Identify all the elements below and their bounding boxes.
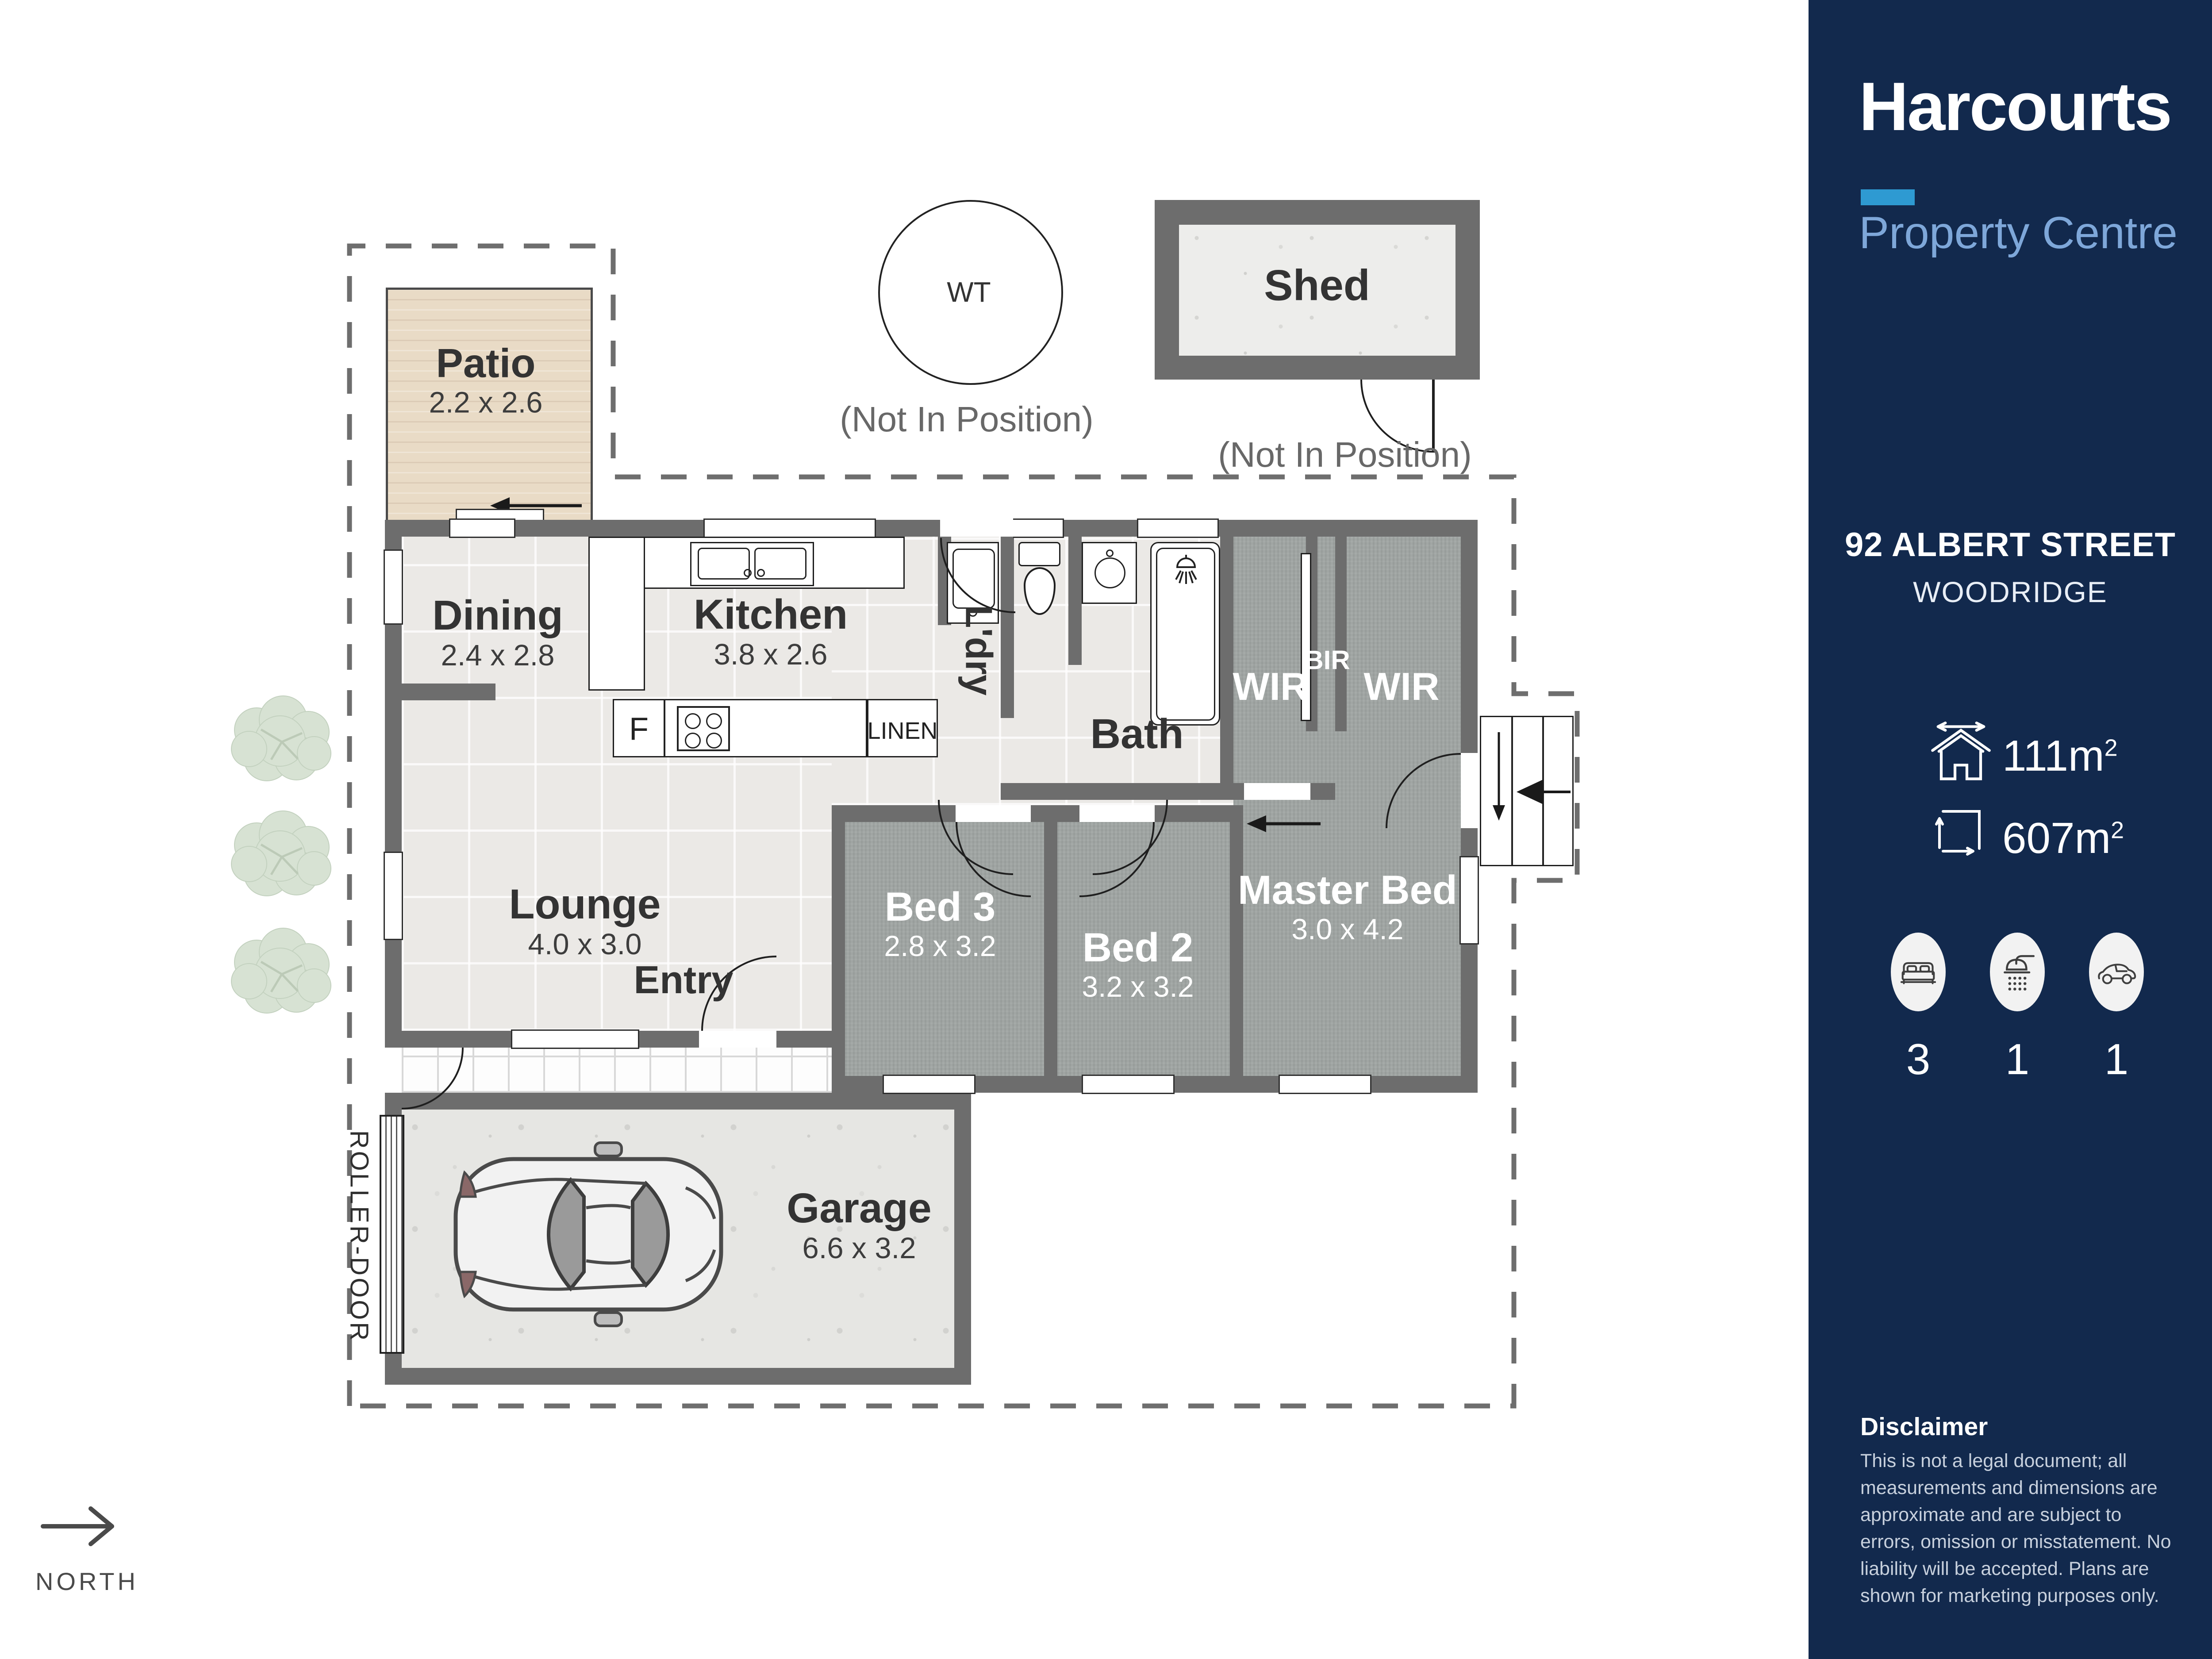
roller-door-label: ROLLER-DOOR [345, 1130, 374, 1343]
disclaimer-body: This is not a legal document; all measur… [1860, 1448, 2175, 1609]
window-dining-left [384, 549, 403, 625]
house-area-icon [1929, 721, 1993, 785]
floor-area-value: 111m2 [2002, 731, 2118, 781]
floor-entry-porch-tiles [402, 1048, 832, 1093]
shower-head-icon [1166, 552, 1206, 588]
bed-count: 3 [1891, 1034, 1946, 1084]
wall-bed3-bed2 [1044, 822, 1057, 1076]
fridge-divider [664, 700, 665, 756]
room-label-bed2: Bed 2 3.2 x 3.2 [1082, 926, 1194, 1004]
door-gap-kitchen-rear [940, 520, 1015, 537]
linen-label: LINEN [867, 717, 937, 745]
water-tank-label: WT [947, 276, 991, 308]
door-gap-wir-hall [1244, 783, 1310, 800]
roller-door [380, 1115, 404, 1354]
bath-vanity [1082, 542, 1137, 604]
room-label-bir: BIR [1304, 646, 1350, 674]
wall-bath-wir [1220, 537, 1233, 800]
brand-tagline: Property Centre [1859, 207, 2177, 259]
wall-bir-wir2 [1335, 537, 1347, 731]
cooktop [677, 706, 730, 751]
land-area-value: 607m2 [2002, 813, 2124, 863]
wall-garage-right [954, 1093, 971, 1385]
room-label-laundry: L'dry [959, 605, 998, 695]
kitchen-counter-left [588, 537, 645, 691]
wall-top [385, 520, 1478, 537]
kitchen-sink [690, 542, 814, 586]
land-area-icon [1933, 804, 1986, 860]
window-bed2 [1082, 1075, 1175, 1094]
room-label-wir1: WIR [1233, 666, 1308, 707]
north-arrow-icon [38, 1500, 131, 1551]
toilet [1018, 542, 1060, 566]
window-master [1279, 1075, 1371, 1094]
car-count: 1 [2089, 1034, 2144, 1084]
shed-note: (Not In Position) [1218, 434, 1472, 475]
info-sidebar: Harcourts Property Centre 92 ALBERT STRE… [1809, 0, 2212, 1659]
north-label: NORTH [35, 1567, 138, 1596]
fridge-label: F [629, 711, 649, 747]
bed-icon [1898, 952, 1938, 992]
wall-hall-top-a [1001, 783, 1233, 800]
window-kitchen [703, 518, 876, 538]
stairs-arrows [1482, 721, 1575, 863]
room-label-patio: Patio 2.2 x 2.6 [429, 342, 542, 421]
wall-garage-bottom [385, 1368, 971, 1385]
car-top-view [438, 1130, 748, 1338]
wall-dining-stub [385, 684, 495, 700]
room-label-wir2: WIR [1363, 666, 1439, 707]
brand-accent-bar [1861, 189, 1915, 205]
floorplan-page: { "brand": { "name": "Harcourts", "tagli… [0, 0, 2212, 1659]
room-label-kitchen: Kitchen 3.8 x 2.6 [694, 593, 848, 672]
tree-icon [223, 692, 343, 803]
door-gap-master-external [1461, 753, 1478, 828]
shower-count: 1 [1990, 1034, 2045, 1084]
car-icon [2095, 956, 2138, 987]
listing-street: 92 ALBERT STREET [1809, 526, 2212, 564]
shower-icon [1997, 950, 2037, 995]
water-tank-note: (Not In Position) [840, 399, 1094, 440]
floorplan-canvas: WT (Not In Position) Shed (Not In Positi… [0, 0, 1809, 1659]
wall-garage-top [385, 1093, 971, 1110]
window-lounge-left [384, 852, 403, 940]
room-label-bath: Bath [1090, 712, 1183, 757]
window-bed3 [883, 1075, 975, 1094]
listing-suburb: WOODRIDGE [1809, 575, 2212, 609]
room-label-bed3: Bed 3 2.8 x 3.2 [884, 886, 996, 964]
window-wc [1013, 518, 1064, 538]
disclaimer-title: Disclaimer [1860, 1412, 1988, 1441]
room-label-garage: Garage 6.6 x 3.2 [787, 1187, 931, 1266]
wall-entry-bed3 [832, 822, 845, 1076]
room-label-entry: Entry [634, 960, 733, 1000]
kitchen-island-bench [613, 699, 867, 757]
window-bath [1137, 518, 1219, 538]
room-label-master: Master Bed 3.0 x 4.2 [1238, 869, 1457, 947]
window-master-right [1459, 856, 1479, 945]
tree-icon [223, 925, 343, 1035]
wall-bed2-master [1230, 822, 1243, 1076]
window-lounge-slider [511, 1029, 639, 1049]
window-patio-door [449, 518, 515, 538]
room-label-lounge: Lounge 4.0 x 3.0 [509, 883, 661, 962]
brand-name: Harcourts [1859, 67, 2171, 146]
hall-direction-arrow [1239, 810, 1327, 838]
room-label-dining: Dining 2.4 x 2.8 [432, 594, 563, 673]
tree-icon [223, 807, 343, 918]
wall-bedrooms-top [832, 805, 1243, 822]
wall-wc-bath [1068, 537, 1082, 665]
shed-label: Shed [1264, 263, 1370, 308]
door-gap-entry [699, 1031, 776, 1048]
